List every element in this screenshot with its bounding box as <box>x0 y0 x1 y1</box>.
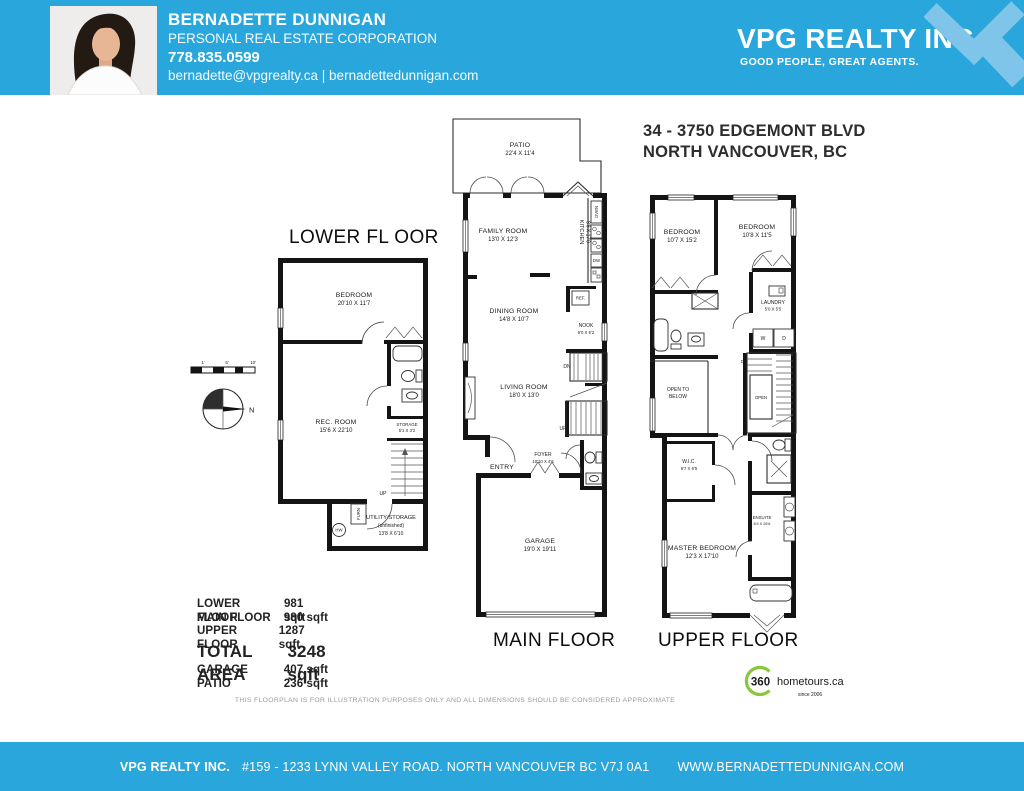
disclaimer-text: THIS FLOORPLAN IS FOR ILLUSTRATION PURPO… <box>155 697 755 704</box>
hometours-logo: 360 hometours.ca since 2006 <box>736 655 856 703</box>
area-value: 407 sqft <box>284 664 328 678</box>
area-label: GARAGE <box>197 664 248 678</box>
upper-ensuite-label: ENSUITE <box>753 515 772 520</box>
footer-website: WWW.BERNADETTEDUNNIGAN.COM <box>677 760 904 774</box>
upper-bedroom3-dims: 10'8 X 11'5 <box>742 233 772 239</box>
main-foyer-label: FOYER <box>534 452 552 458</box>
main-family-dims: 13'0 X 12'3 <box>488 237 518 243</box>
lower-floor-plan: BEDROOM 20'10 X 11'7 REC. ROOM 15'6 X 22… <box>272 246 437 558</box>
lower-hotwater-label: HW <box>335 528 343 533</box>
lower-bedroom-label: BEDROOM <box>336 292 373 299</box>
scale-tick-1: 1' <box>201 360 204 365</box>
area-value: 1287 sqft <box>279 625 328 639</box>
scale-bar-icon <box>191 367 255 373</box>
main-floor-title: MAIN FLOOR <box>493 630 615 652</box>
upper-labels: BEDROOM 10'7 X 15'2 BEDROOM 10'8 X 11'5 … <box>664 224 786 560</box>
upper-bedroom2-label: BEDROOM <box>664 229 701 236</box>
area-value: 980 sqft <box>284 612 328 626</box>
agent-phone: 778.835.0599 <box>168 48 478 67</box>
agent-contact: bernadette@vpgrealty.ca | bernadettedunn… <box>168 67 478 84</box>
area-row-garage: GARAGE 407 sqft <box>197 664 328 678</box>
main-entry-label: ENTRY <box>490 464 514 471</box>
main-ref-label: REF. <box>576 296 585 301</box>
total-area-label: TOTAL AREA <box>197 640 288 663</box>
main-garage-dims: 19'0 X 19'11 <box>524 547 557 553</box>
scale-and-compass: 1' 5' 10' N <box>183 352 263 440</box>
address-line1: 34 - 3750 EDGEMONT BLVD <box>643 121 866 142</box>
hometours-since: since 2006 <box>798 692 822 698</box>
lower-utility-note: (unfinished) <box>378 523 404 529</box>
lower-rec-label: REC. ROOM <box>315 419 356 426</box>
main-dw-label: DW <box>593 258 601 263</box>
upper-dn-label: DN <box>741 359 747 364</box>
upper-walls <box>650 195 796 618</box>
flyer-page: BERNADETTE DUNNIGAN PERSONAL REAL ESTATE… <box>0 0 1024 791</box>
upper-open-label: OPEN <box>755 395 767 400</box>
lower-up-label: UP <box>380 491 388 497</box>
footer-brand: VPG REALTY INC. <box>120 760 230 774</box>
upper-dryer-label: D <box>782 336 786 342</box>
upper-wic-dims: 6'7 X 6'5 <box>681 466 698 471</box>
upper-open-below-1: OPEN TO <box>667 387 689 393</box>
upper-bedroom2-dims: 10'7 X 15'2 <box>667 238 697 244</box>
main-living-label: LIVING ROOM <box>500 384 548 391</box>
agent-info: BERNADETTE DUNNIGAN PERSONAL REAL ESTATE… <box>168 9 478 84</box>
hometours-360: 360 <box>751 677 770 689</box>
main-nook-dims: 6'0 X 6'2 <box>578 330 595 335</box>
main-dn-label: DN <box>563 364 571 370</box>
area-row-upper: UPPER FLOOR 1287 sqft <box>197 625 328 639</box>
area-row-main: MAIN FLOOR 980 sqft <box>197 612 328 626</box>
upper-wic-label: W.I.C. <box>682 459 696 465</box>
main-garage-label: GARAGE <box>525 538 556 545</box>
footer-bar: VPG REALTY INC. #159 - 1233 LYNN VALLEY … <box>0 742 1024 791</box>
agent-name: BERNADETTE DUNNIGAN <box>168 9 478 30</box>
area-table: LOWER FLOOR 981 sqft MAIN FLOOR 980 sqft… <box>197 598 350 691</box>
main-family-label: FAMILY ROOM <box>479 228 528 235</box>
area-row-lower: LOWER FLOOR 981 sqft <box>197 598 328 612</box>
address-line2: NORTH VANCOUVER, BC <box>643 142 866 163</box>
lower-rec-dims: 15'6 X 22'10 <box>320 428 354 434</box>
lower-utility-label: UTILITY/STORAGE <box>366 515 416 521</box>
upper-open-below-2: BELOW <box>669 394 687 400</box>
total-area-value: 3248 sqft <box>288 640 351 663</box>
lower-bedroom-dims: 20'10 X 11'7 <box>338 301 371 307</box>
vpg-logo-icon <box>924 0 1024 95</box>
area-value: 981 sqft <box>284 598 328 612</box>
main-foyer-dims: 10'10 X 4'6 <box>532 459 554 464</box>
agent-portrait-illustration <box>50 6 157 95</box>
listing-address: 34 - 3750 EDGEMONT BLVD NORTH VANCOUVER,… <box>643 121 866 163</box>
upper-washer-label: W <box>761 336 766 342</box>
lower-utility-dims: 13'8 X 6'10 <box>379 531 404 537</box>
main-up-label: UP <box>560 426 568 432</box>
main-dining-dims: 14'8 X 10'7 <box>499 317 529 323</box>
footer-address: #159 - 1233 LYNN VALLEY ROAD. NORTH VANC… <box>242 760 649 774</box>
main-patio-dims: 22'4 X 11'4 <box>505 151 535 157</box>
main-oven-label: OVEN <box>594 206 599 218</box>
upper-bedroom3-label: BEDROOM <box>739 224 776 231</box>
main-kitchen-label: KITCHEN <box>578 220 584 245</box>
agent-photo <box>50 6 157 95</box>
area-label: UPPER FLOOR <box>197 625 279 639</box>
upper-ensuite-dims: 6'4 X 26'6 <box>754 522 771 526</box>
lower-storage-dims: 5'1 X 3'2 <box>399 428 416 433</box>
main-living-dims: 18'0 X 13'0 <box>509 393 539 399</box>
compass-north-label: N <box>249 406 254 415</box>
lower-storage-label: STORAGE <box>397 422 418 427</box>
area-label: PATIO <box>197 678 231 692</box>
main-labels: PATIO 22'4 X 11'4 FAMILY ROOM 13'0 X 12'… <box>479 142 601 553</box>
compass-icon <box>203 389 246 429</box>
upper-floor-plan: BEDROOM 10'7 X 15'2 BEDROOM 10'8 X 11'5 … <box>638 183 801 635</box>
scale-tick-5: 5' <box>225 360 228 365</box>
main-kitchen-dims: 8'8 X 17'0 <box>585 221 591 243</box>
agent-title: PERSONAL REAL ESTATE CORPORATION <box>168 30 478 47</box>
hometours-name: hometours.ca <box>777 676 845 688</box>
area-label: MAIN FLOOR <box>197 612 271 626</box>
lower-furnace-label: FURN <box>356 508 361 520</box>
area-label: LOWER FLOOR <box>197 598 284 612</box>
scale-tick-10: 10' <box>250 360 256 365</box>
area-row-patio: PATIO 236 sqft <box>197 678 328 692</box>
upper-master-label: MASTER BEDROOM <box>668 545 736 552</box>
main-patio-label: PATIO <box>510 142 530 149</box>
main-dining-label: DINING ROOM <box>489 308 538 315</box>
upper-laundry-label: LAUNDRY <box>761 300 785 306</box>
upper-laundry-dims: 5'0 X 5'5 <box>765 307 782 312</box>
header-bar: BERNADETTE DUNNIGAN PERSONAL REAL ESTATE… <box>0 0 1024 95</box>
upper-master-dims: 12'3 X 17'10 <box>686 554 720 560</box>
area-row-total: TOTAL AREA 3248 sqft <box>197 640 350 663</box>
main-floor-plan: PATIO 22'4 X 11'4 FAMILY ROOM 13'0 X 12'… <box>445 105 613 623</box>
area-value: 236 sqft <box>284 678 328 692</box>
main-nook-label: NOOK <box>579 323 594 329</box>
